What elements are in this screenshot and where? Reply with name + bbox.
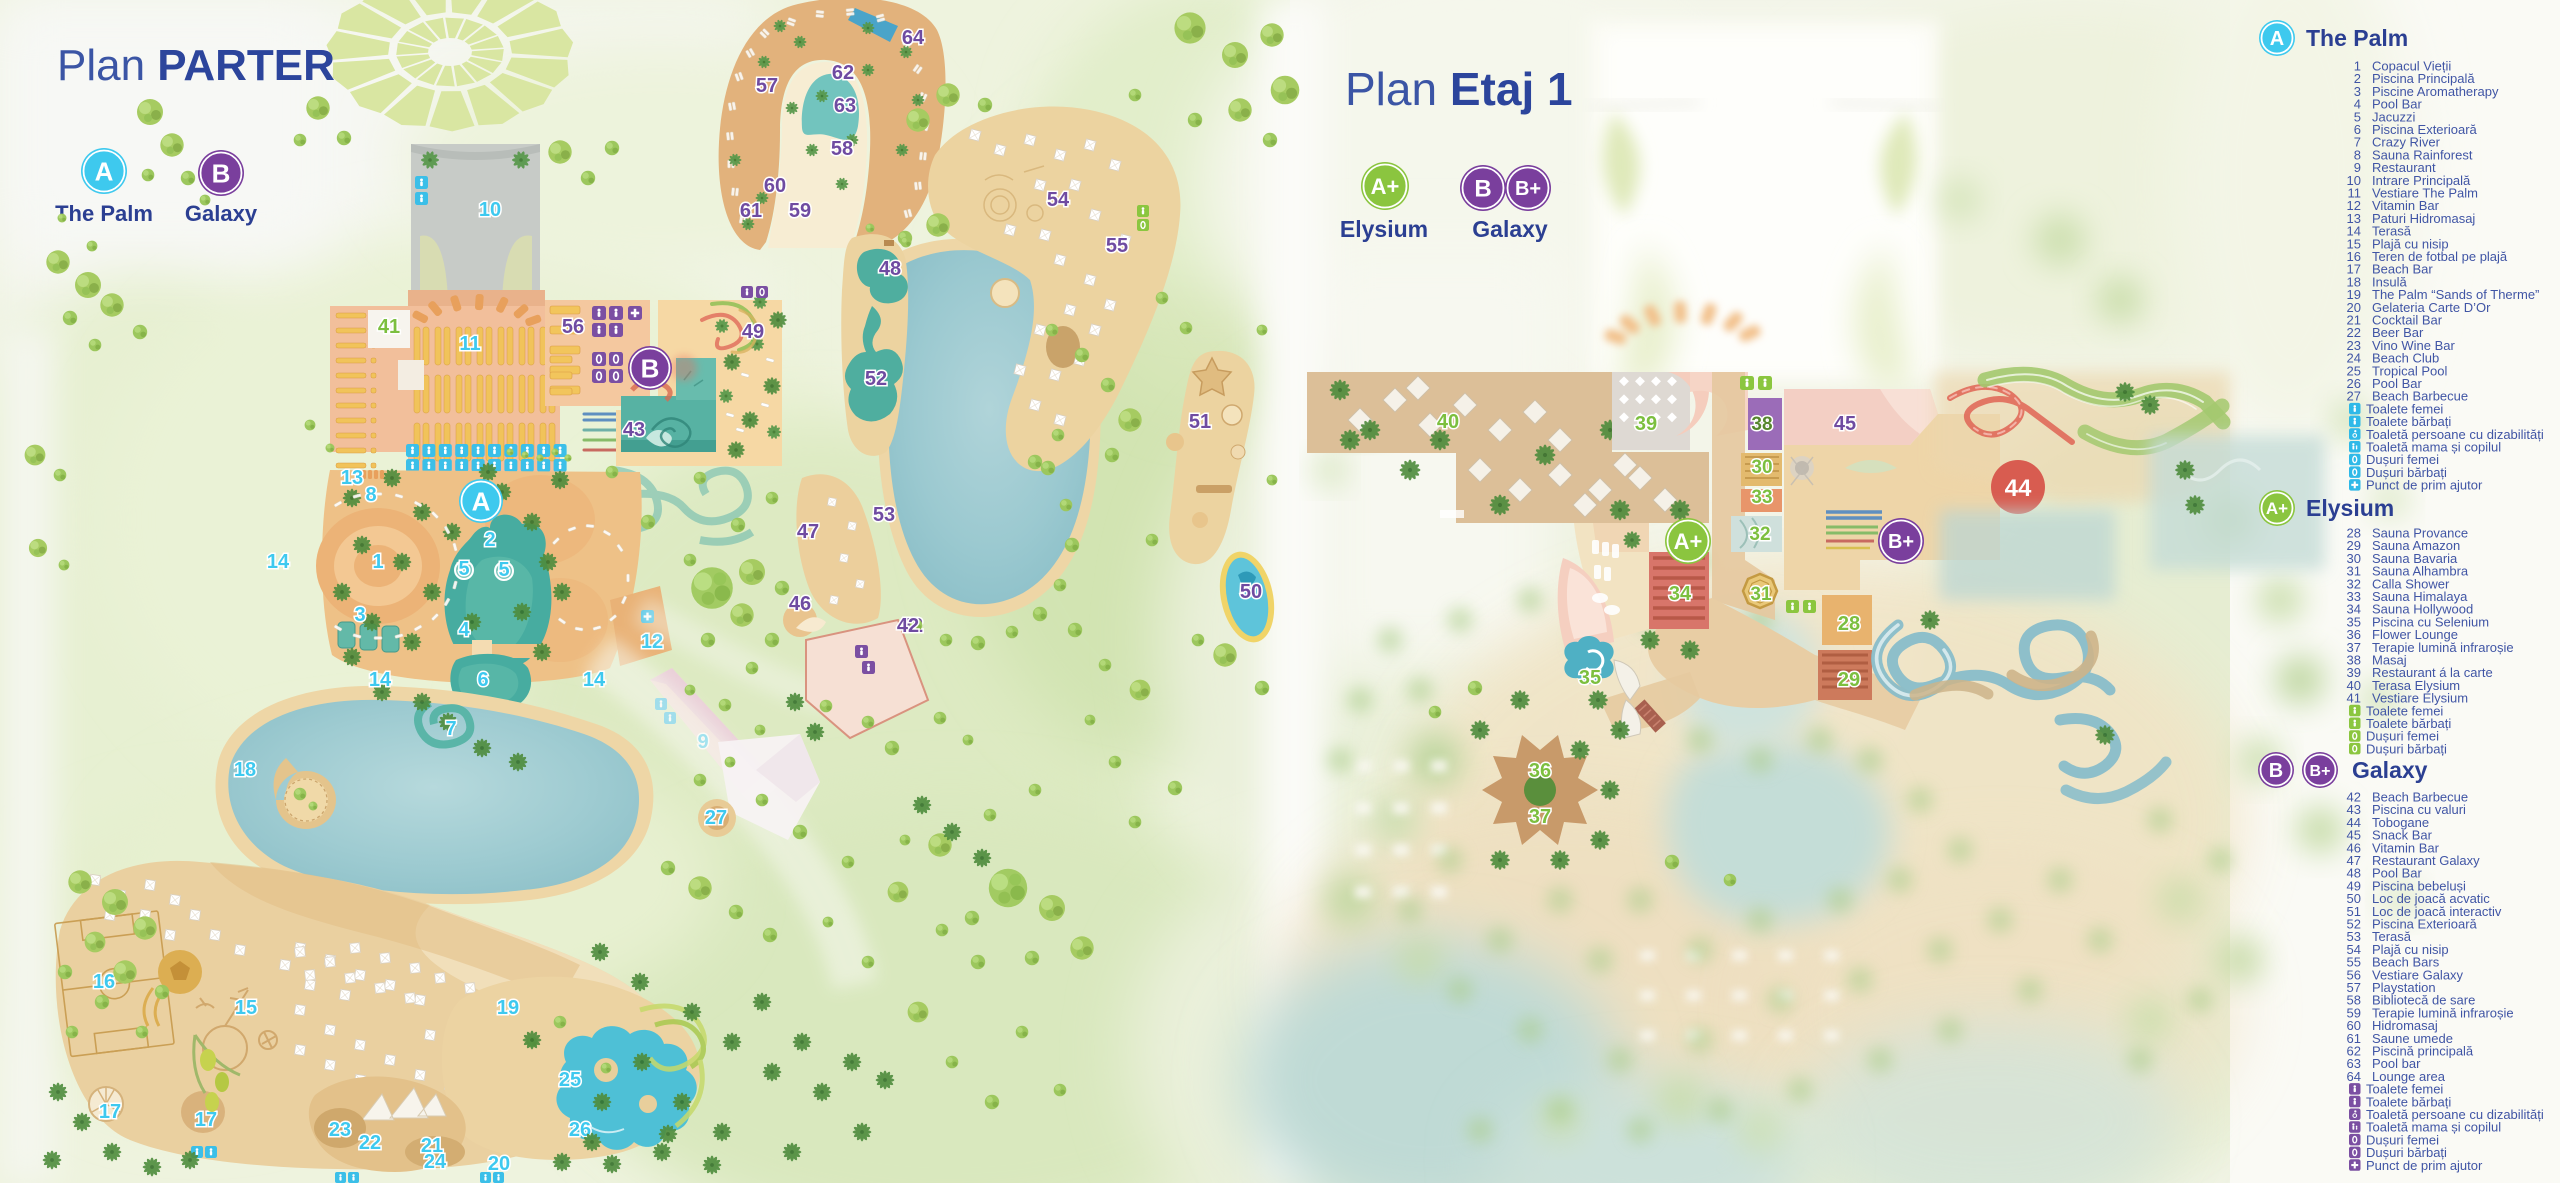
svg-text:44: 44 (2005, 475, 2032, 502)
svg-text:31: 31 (1750, 584, 1772, 605)
svg-text:50: 50 (1240, 581, 1262, 603)
svg-text:64: 64 (902, 27, 925, 49)
svg-text:41: 41 (378, 316, 400, 338)
svg-text:A+: A+ (1371, 174, 1400, 199)
svg-text:B+: B+ (2310, 763, 2331, 780)
svg-text:A: A (2270, 28, 2284, 50)
svg-text:62: 62 (832, 62, 854, 84)
svg-text:Galaxy: Galaxy (2352, 757, 2428, 783)
svg-text:28: 28 (1838, 613, 1860, 635)
svg-text:6: 6 (477, 669, 488, 691)
svg-text:14: 14 (267, 551, 290, 573)
svg-text:4: 4 (458, 619, 470, 641)
svg-text:17: 17 (99, 1101, 121, 1123)
svg-text:Galaxy: Galaxy (185, 201, 258, 226)
svg-text:23: 23 (329, 1119, 351, 1141)
svg-text:47: 47 (797, 521, 819, 543)
svg-text:A+: A+ (1674, 529, 1703, 554)
svg-text:40: 40 (1437, 411, 1459, 433)
svg-text:Elysium: Elysium (2306, 495, 2394, 521)
svg-text:24: 24 (424, 1151, 447, 1173)
svg-text:20: 20 (488, 1153, 510, 1175)
svg-text:42: 42 (897, 615, 919, 637)
svg-text:B+: B+ (1888, 531, 1914, 553)
svg-text:57: 57 (756, 75, 778, 97)
svg-text:17: 17 (195, 1109, 217, 1131)
svg-text:3: 3 (354, 604, 365, 626)
svg-text:56: 56 (562, 316, 584, 338)
svg-text:A+: A+ (2266, 499, 2288, 518)
svg-text:46: 46 (789, 593, 811, 615)
svg-text:2: 2 (484, 529, 495, 551)
svg-text:27: 27 (705, 807, 727, 829)
svg-text:38: 38 (1751, 414, 1772, 435)
svg-text:The Palm: The Palm (55, 201, 153, 226)
svg-text:B: B (1474, 176, 1491, 203)
svg-text:29: 29 (1838, 669, 1860, 691)
svg-text:61: 61 (740, 200, 762, 222)
svg-text:33: 33 (1751, 487, 1772, 508)
svg-text:25: 25 (559, 1069, 581, 1091)
svg-text:53: 53 (873, 504, 895, 526)
svg-text:Punct de prim ajutor: Punct de prim ajutor (2366, 1158, 2483, 1173)
svg-text:19: 19 (497, 997, 519, 1019)
svg-text:Punct de prim ajutor: Punct de prim ajutor (2366, 478, 2483, 493)
svg-text:8: 8 (365, 484, 376, 506)
svg-text:45: 45 (1834, 413, 1856, 435)
svg-text:52: 52 (865, 368, 887, 390)
svg-text:A: A (472, 486, 491, 516)
svg-text:13: 13 (341, 467, 363, 489)
svg-text:11: 11 (459, 333, 480, 355)
svg-text:60: 60 (764, 175, 786, 197)
svg-text:34: 34 (1669, 583, 1692, 605)
svg-text:1: 1 (372, 551, 383, 573)
svg-text:35: 35 (1579, 667, 1601, 689)
svg-text:41: 41 (2347, 691, 2361, 706)
svg-text:The Palm: The Palm (2306, 25, 2408, 51)
svg-text:5: 5 (498, 559, 509, 581)
svg-text:5: 5 (458, 558, 469, 580)
svg-text:A: A (95, 156, 114, 186)
svg-text:55: 55 (1106, 235, 1128, 257)
svg-text:Plan PARTER: Plan PARTER (57, 41, 335, 90)
svg-text:B: B (641, 353, 660, 383)
svg-text:Plan Etaj 1: Plan Etaj 1 (1345, 63, 1573, 115)
svg-text:18: 18 (234, 759, 256, 781)
svg-text:48: 48 (879, 258, 901, 280)
svg-text:54: 54 (1047, 189, 1070, 211)
svg-text:64: 64 (2347, 1069, 2361, 1084)
svg-text:58: 58 (831, 138, 853, 160)
svg-text:14: 14 (583, 669, 606, 691)
svg-text:37: 37 (1529, 806, 1551, 828)
svg-text:10: 10 (479, 199, 501, 221)
svg-text:B: B (212, 158, 231, 188)
svg-text:63: 63 (834, 95, 856, 117)
svg-text:49: 49 (742, 321, 764, 343)
svg-text:32: 32 (1749, 524, 1770, 545)
svg-text:39: 39 (1635, 413, 1657, 435)
svg-text:14: 14 (369, 669, 392, 691)
svg-text:Dușuri bărbați: Dușuri bărbați (2366, 741, 2447, 756)
svg-text:B: B (2269, 760, 2283, 782)
svg-text:B+: B+ (1515, 178, 1541, 200)
svg-text:36: 36 (1529, 760, 1551, 782)
svg-text:30: 30 (1751, 457, 1772, 478)
svg-text:51: 51 (1189, 411, 1211, 433)
svg-text:22: 22 (359, 1132, 381, 1154)
svg-text:59: 59 (789, 200, 811, 222)
svg-text:7: 7 (445, 718, 456, 740)
svg-text:27: 27 (2347, 389, 2361, 404)
svg-text:Galaxy: Galaxy (1472, 216, 1548, 242)
svg-text:Elysium: Elysium (1340, 216, 1428, 242)
svg-text:43: 43 (623, 419, 645, 441)
